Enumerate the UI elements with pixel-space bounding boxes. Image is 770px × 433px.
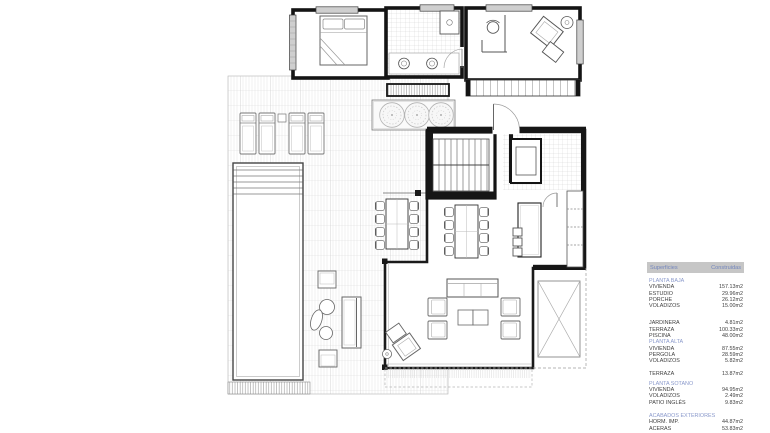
bench-strip	[387, 84, 449, 96]
window	[290, 15, 297, 70]
surface-row: VOLADIZOS5.82m2	[649, 358, 743, 364]
surface-value: 13.87m2	[722, 371, 743, 377]
side-table	[561, 17, 573, 29]
shower	[440, 11, 459, 34]
armchair	[501, 298, 520, 316]
header-construidas: Construidas	[711, 265, 741, 271]
deck-edge-strip	[228, 382, 310, 394]
coffee-table	[473, 310, 488, 325]
studio	[466, 5, 583, 80]
surface-value: 9.83m2	[725, 400, 743, 406]
surface-label: TERRAZA	[649, 371, 674, 377]
window	[420, 5, 454, 11]
surface-label: VOLADIZOS	[649, 303, 680, 309]
bathroom	[386, 5, 465, 77]
table-section: PLANTA BAJAVIVIENDA157.13m2ESTUDIO29.96m…	[649, 278, 743, 309]
armchair	[428, 321, 447, 339]
pouf	[320, 327, 333, 340]
surface-row: VOLADIZOS15.00m2	[649, 303, 743, 309]
sofa	[447, 279, 498, 297]
pergola-void	[533, 268, 586, 368]
surface-row: PATIO INGLÉS9.83m2	[649, 400, 743, 406]
table-section: JARDINERA4.81m2TERRAZA100.33m2PISCINA48.…	[649, 320, 743, 339]
pillow	[345, 19, 365, 29]
page: Superficies Construidas PLANTA BAJAVIVIE…	[0, 0, 770, 433]
table-section: ACABADOS EXTERIORESHORM. IMP.44.87m2ACER…	[649, 413, 743, 432]
surface-row: ACERAS53.83m2	[649, 426, 743, 432]
surfaces-table: Superficies Construidas PLANTA BAJAVIVIE…	[647, 262, 744, 432]
surfaces-table-header: Superficies Construidas	[647, 262, 744, 273]
entrance-door	[493, 104, 520, 134]
surface-value: 15.00m2	[722, 303, 743, 309]
staircase	[427, 132, 495, 198]
outdoor-sofa	[342, 297, 361, 348]
column	[382, 259, 388, 265]
surface-label: ACERAS	[649, 426, 671, 432]
master-bedroom	[290, 7, 389, 78]
table-section: PLANTA ALTAVIVIENDA87.55m2PERGOLA28.59m2…	[649, 339, 743, 364]
header-superficies: Superficies	[650, 265, 678, 271]
armchair	[501, 321, 520, 339]
sink-icon	[427, 58, 438, 69]
surface-value: 5.82m2	[725, 358, 743, 364]
balcony-strip	[466, 80, 580, 96]
pillow	[323, 19, 343, 29]
surface-row: TERRAZA13.87m2	[649, 371, 743, 377]
surface-value: 53.83m2	[722, 426, 743, 432]
tree-icon	[429, 103, 454, 128]
coffee-table	[458, 310, 473, 325]
desk-chair	[487, 22, 499, 34]
table-section: TERRAZA13.87m2	[649, 371, 743, 377]
window	[316, 7, 358, 13]
surface-label: PATIO INGLÉS	[649, 400, 686, 406]
window	[486, 5, 532, 11]
sink-icon	[399, 58, 410, 69]
surfaces-table-body: PLANTA BAJAVIVIENDA157.13m2ESTUDIO29.96m…	[647, 273, 744, 432]
bed	[320, 16, 367, 65]
side-table	[278, 114, 286, 122]
tree-icon	[405, 103, 430, 128]
swimming-pool	[233, 163, 303, 380]
surface-label: VOLADIZOS	[649, 358, 680, 364]
stool	[513, 238, 522, 246]
table-section: PLANTA SOTANOVIVIENDA94.95m2VOLADIZOS2.4…	[649, 381, 743, 406]
stool	[513, 248, 522, 256]
window	[577, 20, 583, 64]
stool	[513, 228, 522, 236]
kitchen-counter	[567, 191, 583, 267]
column	[415, 190, 421, 196]
tree-icon	[380, 103, 405, 128]
surface-value: 48.00m2	[722, 333, 743, 339]
armchair	[428, 298, 447, 316]
